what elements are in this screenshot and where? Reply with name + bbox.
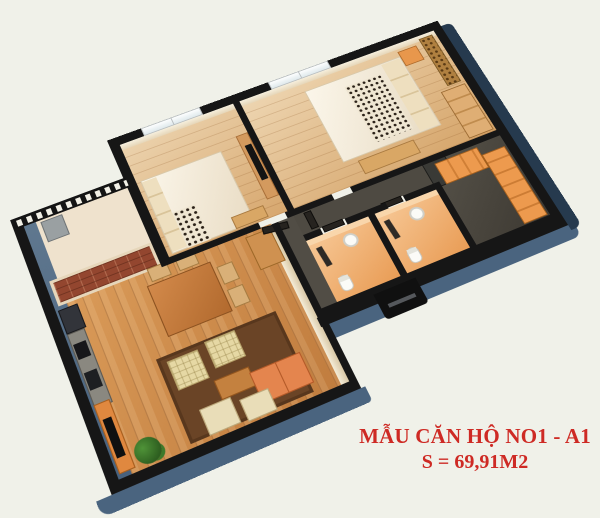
- caption: MẪU CĂN HỘ NO1 - A1 S = 69,91M2: [352, 423, 598, 475]
- apartment-title: MẪU CĂN HỘ NO1 - A1: [352, 423, 598, 449]
- apartment-area: S = 69,91M2: [352, 449, 598, 475]
